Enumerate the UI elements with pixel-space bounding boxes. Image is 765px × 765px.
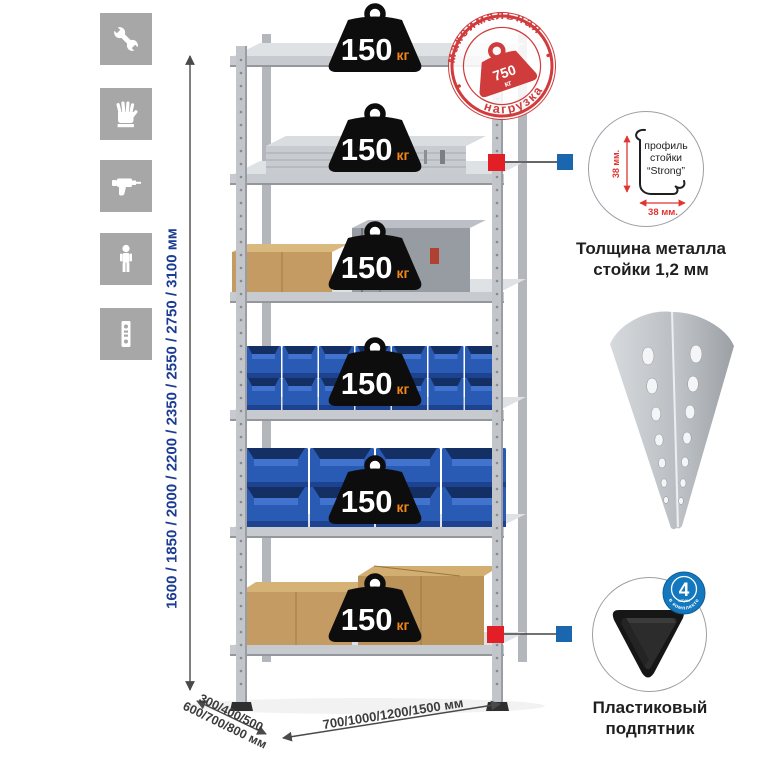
- profile-label: стойки: [650, 152, 682, 164]
- foot-caption: Пластиковый подпятник: [575, 697, 725, 739]
- blue-marker-square-top: [557, 154, 573, 170]
- metal-angle-post-image: [598, 300, 748, 540]
- blue-marker-square-bottom: [556, 626, 572, 642]
- perforated-strip-icon: [109, 317, 143, 351]
- gloves-icon: [109, 97, 143, 131]
- product-infographic: 150кг 150кг 150кг 150кг 150кг 150кг: [0, 0, 765, 765]
- feature-tile-person: [100, 233, 152, 285]
- profile-callout-connector: [488, 154, 573, 171]
- shelf-load-badge: 150кг: [329, 6, 422, 72]
- height-dimension-label: 1600 / 1850 / 2000 / 2200 / 2350 / 2550 …: [164, 119, 181, 719]
- foot-callout-connector: [487, 626, 572, 643]
- red-marker-square-top: [488, 154, 505, 171]
- red-marker-square-bottom: [487, 626, 504, 643]
- profile-caption: Толщина металла стойки 1,2 мм: [571, 238, 731, 280]
- profile-section-drawing: 38 мм. 38 мм. профиль стойки “Strong”: [589, 112, 702, 225]
- feature-tile-profile: [100, 308, 152, 360]
- feature-tile-assembly: [100, 13, 152, 65]
- profile-dim-horizontal: 38 мм.: [648, 207, 678, 218]
- profile-detail-circle: 38 мм. 38 мм. профиль стойки “Strong”: [588, 111, 704, 227]
- shelf-load-badge: 150кг: [329, 106, 422, 172]
- max-load-stamp: максимальная нагрузка 750 кг: [431, 0, 571, 134]
- profile-label: профиль: [644, 140, 688, 152]
- shelf-load-badges: 150кг 150кг 150кг 150кг 150кг 150кг: [329, 6, 422, 642]
- profile-label: “Strong”: [647, 165, 685, 177]
- profile-dim-vertical: 38 мм.: [611, 150, 621, 178]
- feature-tile-gloves: [100, 88, 152, 140]
- wrench-icon: [109, 22, 143, 56]
- included-count-badge: 4 штуки в комплекте: [662, 571, 706, 615]
- count-sub: штуки: [678, 598, 690, 603]
- drill-icon: [109, 169, 143, 203]
- feature-tile-drill: [100, 160, 152, 212]
- person-icon: [109, 242, 143, 276]
